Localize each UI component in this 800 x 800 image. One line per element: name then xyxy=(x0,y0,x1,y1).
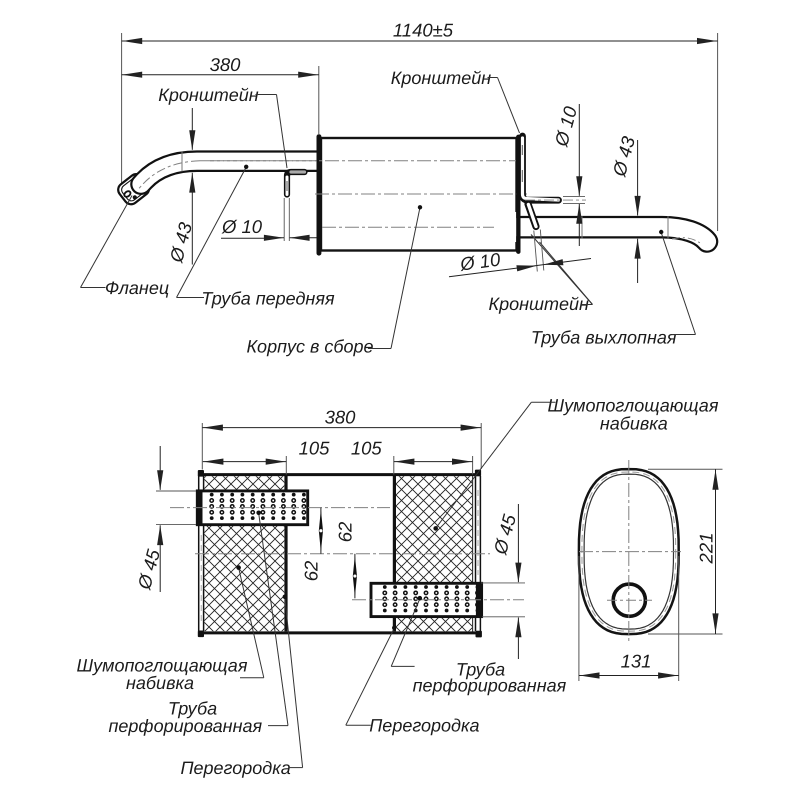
svg-text:Кронштейн: Кронштейн xyxy=(391,68,491,88)
svg-text:62: 62 xyxy=(335,521,356,542)
svg-text:131: 131 xyxy=(621,651,652,672)
svg-text:380: 380 xyxy=(325,407,357,428)
svg-text:Перегородка: Перегородка xyxy=(369,716,479,736)
svg-text:105: 105 xyxy=(351,438,383,459)
svg-text:Ø 10: Ø 10 xyxy=(221,216,263,237)
svg-text:105: 105 xyxy=(299,438,331,459)
svg-text:62: 62 xyxy=(301,560,322,581)
svg-text:Корпус в сборе: Корпус в сборе xyxy=(246,337,373,357)
svg-text:набивка: набивка xyxy=(126,673,194,693)
svg-text:Шумопоглощающая: Шумопоглощающая xyxy=(548,396,719,416)
svg-text:221: 221 xyxy=(696,533,717,565)
svg-text:Кронштейн: Кронштейн xyxy=(488,294,588,314)
svg-text:Фланец: Фланец xyxy=(105,278,169,298)
svg-text:1140±5: 1140±5 xyxy=(393,20,454,41)
svg-text:набивка: набивка xyxy=(600,414,668,434)
svg-text:Перегородка: Перегородка xyxy=(180,758,290,778)
svg-text:перфорированная: перфорированная xyxy=(413,676,567,696)
svg-text:Труба выхлопная: Труба выхлопная xyxy=(531,328,677,348)
svg-text:Кронштейн: Кронштейн xyxy=(158,85,258,105)
svg-text:перфорированная: перфорированная xyxy=(108,716,262,736)
svg-text:Труба передняя: Труба передняя xyxy=(201,289,335,309)
svg-text:380: 380 xyxy=(210,54,242,75)
